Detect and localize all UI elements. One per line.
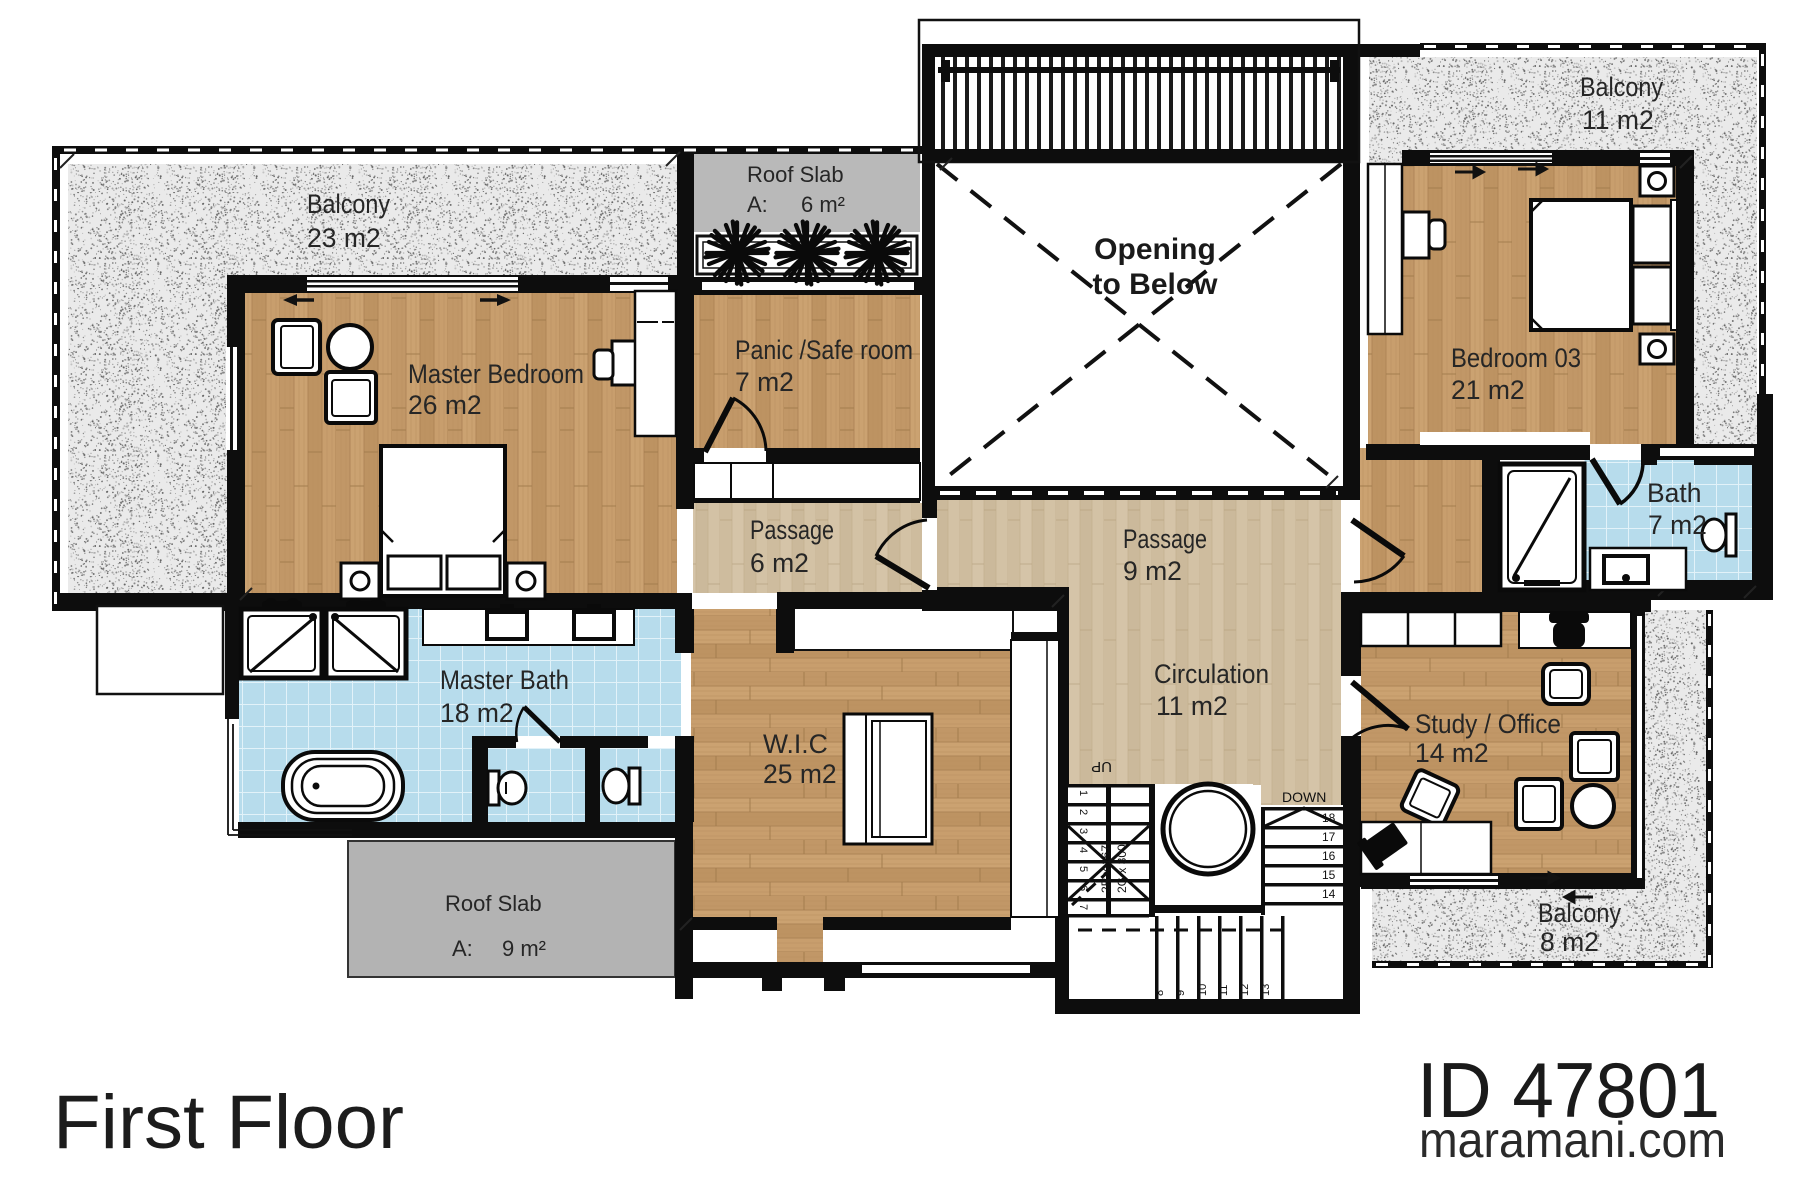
svg-text:9 m2: 9 m2 [1123, 556, 1182, 586]
svg-text:Bedroom 03: Bedroom 03 [1451, 343, 1581, 373]
svg-text:18: 18 [1322, 811, 1336, 825]
svg-text:Balcony: Balcony [307, 189, 391, 219]
svg-text:Master Bath: Master Bath [440, 665, 569, 695]
svg-text:Bath: Bath [1647, 478, 1702, 508]
svg-text:16: 16 [1322, 849, 1336, 863]
svg-text:11: 11 [1218, 985, 1230, 996]
svg-text:Roof Slab: Roof Slab [445, 891, 542, 916]
svg-text:maramani.com: maramani.com [1419, 1112, 1726, 1168]
svg-text:7 m2: 7 m2 [735, 367, 794, 397]
svg-text:Passage: Passage [750, 515, 834, 545]
svg-text:13: 13 [1260, 984, 1272, 996]
svg-text:9 m²: 9 m² [502, 936, 546, 961]
svg-text:8 m2: 8 m2 [1540, 927, 1599, 957]
svg-text:11 m2: 11 m2 [1156, 691, 1228, 721]
svg-text:2: 2 [1077, 809, 1089, 815]
svg-text:10: 10 [1197, 984, 1209, 996]
svg-text:First Floor: First Floor [53, 1080, 404, 1165]
svg-text:2G x 300: 2G x 300 [1115, 844, 1129, 893]
svg-text:Circulation: Circulation [1154, 659, 1269, 689]
svg-text:12: 12 [1239, 984, 1251, 996]
svg-text:to Below: to Below [1093, 268, 1219, 301]
svg-text:Balcony: Balcony [1580, 72, 1664, 102]
svg-text:Study / Office: Study / Office [1415, 709, 1561, 739]
svg-text:25 m2: 25 m2 [763, 759, 837, 789]
svg-text:Roof Slab: Roof Slab [747, 162, 844, 187]
svg-text:2R x 167: 2R x 167 [1099, 845, 1113, 893]
svg-text:6: 6 [1077, 885, 1089, 891]
svg-text:14: 14 [1322, 887, 1336, 901]
svg-text:A:: A: [747, 192, 768, 217]
svg-text:DOWN: DOWN [1282, 789, 1326, 805]
svg-text:21 m2: 21 m2 [1451, 375, 1525, 405]
svg-text:8: 8 [1154, 990, 1166, 996]
svg-text:7 m2: 7 m2 [1648, 510, 1707, 540]
svg-text:11 m2: 11 m2 [1582, 105, 1654, 135]
svg-text:Opening: Opening [1094, 233, 1216, 266]
svg-text:14 m2: 14 m2 [1415, 738, 1489, 768]
svg-text:15: 15 [1322, 868, 1336, 882]
svg-text:W.I.C: W.I.C [763, 729, 828, 759]
svg-text:Master Bedroom: Master Bedroom [408, 359, 584, 389]
svg-text:UP: UP [1091, 758, 1112, 775]
svg-text:9: 9 [1175, 990, 1187, 996]
svg-text:4: 4 [1077, 847, 1089, 853]
svg-text:6 m2: 6 m2 [750, 548, 809, 578]
svg-text:18 m2: 18 m2 [440, 698, 514, 728]
svg-text:7: 7 [1077, 904, 1089, 910]
svg-text:1: 1 [1077, 790, 1089, 796]
svg-text:Panic /Safe room: Panic /Safe room [735, 335, 913, 365]
svg-text:A:: A: [452, 936, 473, 961]
svg-text:26 m2: 26 m2 [408, 390, 482, 420]
svg-text:3: 3 [1077, 828, 1089, 834]
svg-text:Balcony: Balcony [1538, 898, 1622, 928]
svg-text:23 m2: 23 m2 [307, 223, 381, 253]
svg-text:5: 5 [1077, 866, 1089, 872]
svg-text:17: 17 [1322, 830, 1336, 844]
svg-text:Passage: Passage [1123, 524, 1207, 554]
svg-text:6 m²: 6 m² [801, 192, 845, 217]
